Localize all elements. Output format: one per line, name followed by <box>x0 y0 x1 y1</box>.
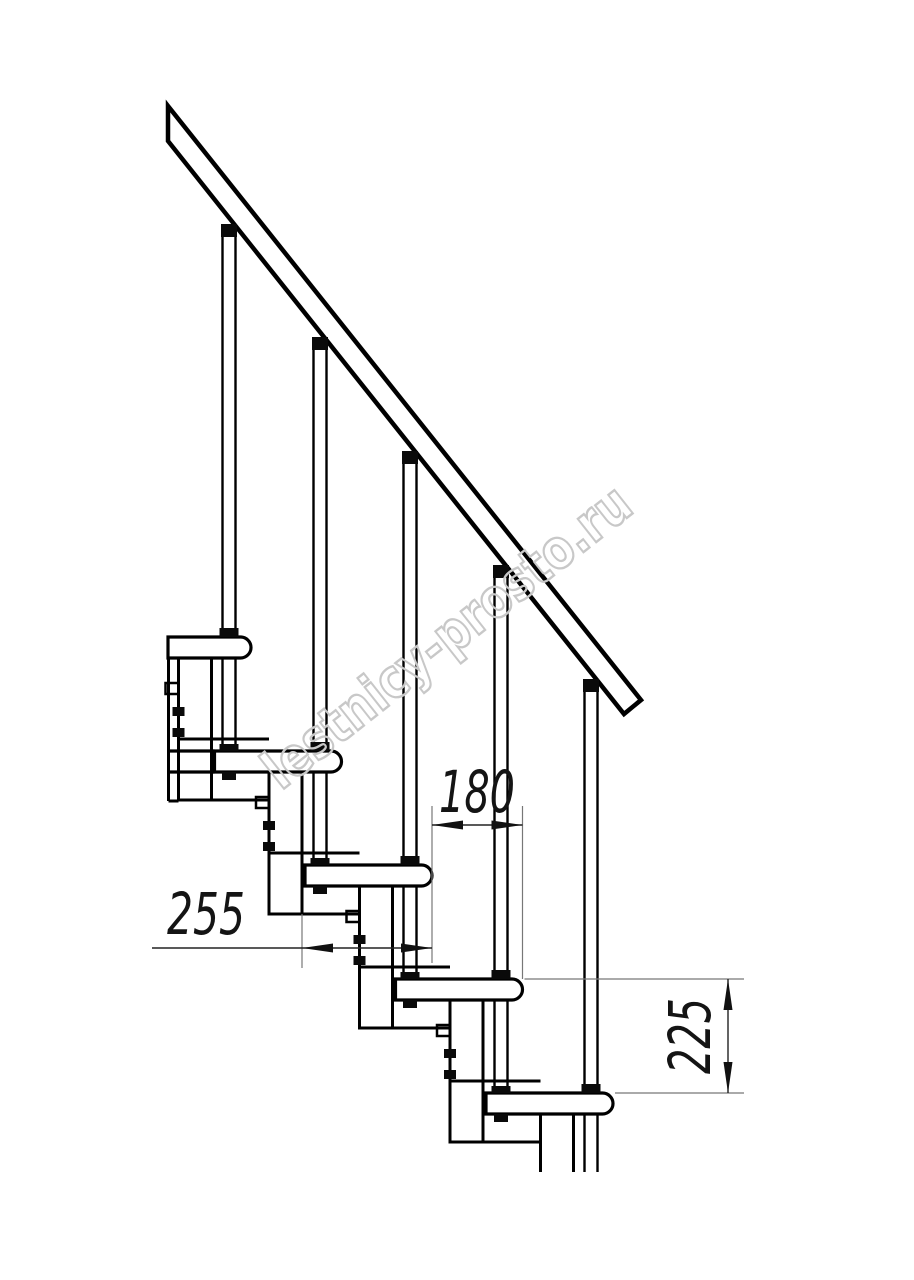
staircase-drawing: 180 255 225 lestnicy-prosto.ru <box>0 0 914 1280</box>
dimension-tread-depth-value: 255 <box>167 880 245 948</box>
bolt-icon <box>444 1049 456 1058</box>
baluster-flange <box>401 856 420 865</box>
baluster-2 <box>311 337 330 894</box>
baluster-nut <box>313 886 327 894</box>
bolt-icon <box>354 935 366 944</box>
baluster-flange <box>401 972 420 979</box>
tread-3 <box>305 865 432 886</box>
baluster-nut <box>494 1114 508 1122</box>
baluster-3 <box>401 451 420 1008</box>
rail-connector <box>312 337 328 350</box>
stringer-tube-5-clipped <box>541 1114 574 1172</box>
baluster-flange <box>311 858 330 865</box>
tread-1 <box>168 637 251 658</box>
rail-connector <box>221 224 237 237</box>
baluster-flange <box>220 744 239 751</box>
dimension-riser-height-value: 225 <box>656 998 724 1074</box>
baluster-5 <box>582 679 601 1172</box>
dimension-tread-depth: 255 <box>152 880 432 953</box>
baluster-nut <box>403 1000 417 1008</box>
bolt-icon <box>354 956 366 965</box>
bolt-icon <box>263 842 275 851</box>
baluster-flange <box>220 628 239 637</box>
baluster-flange <box>492 1086 511 1093</box>
rail-connector <box>402 451 418 464</box>
baluster-1 <box>220 224 239 780</box>
rail-connector <box>583 679 599 692</box>
arrow-down-icon <box>724 1062 733 1093</box>
dimension-run-value: 180 <box>439 758 515 826</box>
baluster-flange <box>492 970 511 979</box>
arrow-left-icon <box>302 944 333 953</box>
tread-2-clipped-lines <box>169 751 215 772</box>
dimension-riser-height: 225 <box>656 979 733 1093</box>
bolt-icon <box>173 707 185 716</box>
bolt-icon <box>444 1070 456 1079</box>
baluster-nut <box>222 772 236 780</box>
tread-4 <box>396 979 523 1000</box>
baluster-flange <box>582 1084 601 1093</box>
bolt-icon <box>173 728 185 737</box>
arrow-up-icon <box>724 979 733 1010</box>
bolt-icon <box>263 821 275 830</box>
dimension-run: 180 <box>432 758 523 830</box>
tread-5 <box>486 1093 613 1114</box>
technical-drawing-page: 180 255 225 lestnicy-prosto.ru <box>0 0 914 1280</box>
baluster-4 <box>492 565 511 1122</box>
dimensions: 180 255 225 <box>152 758 744 1093</box>
